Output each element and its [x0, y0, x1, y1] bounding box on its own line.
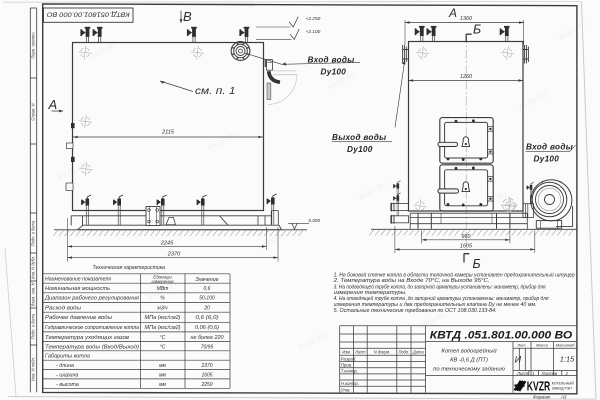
- svg-text:МПа (кгс/см2): МПа (кгс/см2): [145, 315, 181, 321]
- svg-text:А: А: [448, 6, 457, 20]
- svg-text:Рабочее давление воды: Рабочее давление воды: [45, 315, 112, 321]
- svg-text:КВТД .051.801.00.000 ВО: КВТД .051.801.00.000 ВО: [430, 330, 573, 342]
- svg-text:Пров.: Пров.: [341, 363, 352, 368]
- svg-text:2115: 2115: [161, 130, 175, 136]
- svg-text:Подп. и дата: Подп. и дата: [31, 313, 36, 339]
- svg-text:Вход воды: Вход воды: [526, 142, 573, 151]
- svg-text:2. Температура воды на Входе: 2. Температура воды на Входе 70°С, на Вы…: [332, 278, 489, 284]
- svg-text:2245: 2245: [160, 240, 174, 246]
- svg-text:- ширина: - ширина: [56, 372, 78, 378]
- svg-text:В: В: [183, 9, 192, 24]
- svg-text:N докум.: N докум.: [374, 350, 391, 355]
- svg-text:Инв. N дубл.: Инв. N дубл.: [31, 256, 36, 280]
- svg-text:2250: 2250: [200, 382, 212, 388]
- svg-text:Значение: Значение: [195, 277, 218, 283]
- svg-text:2370: 2370: [200, 363, 212, 369]
- svg-text:Справ. N: Справ. N: [31, 103, 36, 120]
- svg-text:мм: мм: [159, 372, 166, 378]
- svg-text:KVZR: KVZR: [527, 380, 551, 394]
- svg-text:мм: мм: [159, 363, 166, 369]
- svg-text:КВ -0,6 Д (ПТ): КВ -0,6 Д (ПТ): [450, 358, 488, 364]
- svg-text:Дата: Дата: [412, 350, 425, 355]
- svg-text:мм: мм: [159, 382, 166, 388]
- svg-text:20: 20: [203, 305, 210, 311]
- svg-text:4. На отводящей трубе котла ,: 4. На отводящей трубе котла ,до запорной…: [334, 295, 549, 302]
- svg-text:Подп.: Подп.: [398, 350, 409, 355]
- svg-text:1605: 1605: [201, 372, 212, 378]
- svg-text:Диапазон рабочего регулировани: Диапазон рабочего регулирования: [44, 296, 139, 302]
- svg-text:0,06 (0,6): 0,06 (0,6): [195, 325, 219, 331]
- svg-text:°С: °С: [160, 335, 166, 341]
- svg-text:Т.контр.: Т.контр.: [341, 369, 358, 374]
- svg-text:Инв. N подл.: Инв. N подл.: [31, 357, 36, 381]
- svg-text:А: А: [48, 97, 58, 112]
- svg-text:1:15: 1:15: [560, 355, 575, 364]
- svg-text:Н.контр.: Н.контр.: [341, 381, 359, 386]
- svg-text:см. п. 1: см. п. 1: [195, 86, 236, 97]
- svg-text:Утв.: Утв.: [341, 387, 351, 392]
- svg-text:не более 220: не более 220: [191, 335, 224, 341]
- svg-text:по техническому заданию: по техническому заданию: [433, 366, 505, 372]
- svg-text:+2.250: +2.250: [306, 16, 321, 22]
- svg-text:Dy100: Dy100: [321, 67, 347, 76]
- svg-text:Вход воды: Вход воды: [308, 55, 355, 64]
- svg-text:960: 960: [462, 234, 471, 240]
- svg-text:Dy100: Dy100: [347, 145, 373, 154]
- svg-text:м3/ч: м3/ч: [157, 305, 168, 311]
- svg-text:2370: 2370: [167, 252, 181, 258]
- svg-text:Взам. инв. N: Взам. инв. N: [31, 283, 36, 307]
- svg-text:Гидравлическое сопротивление к: Гидравлическое сопротивление котла: [45, 325, 139, 331]
- svg-text:Масштаб: Масштаб: [556, 343, 575, 348]
- svg-text:Температура уходящих газов: Температура уходящих газов: [45, 335, 129, 341]
- svg-text:1360: 1360: [460, 16, 472, 22]
- svg-text:Б: Б: [473, 22, 481, 36]
- svg-text:Выход воды: Выход воды: [332, 133, 386, 142]
- svg-text:Перв. примен.: Перв. примен.: [31, 31, 36, 58]
- svg-text:Габариты котла: Габариты котла: [45, 354, 90, 360]
- svg-text:1260: 1260: [460, 74, 472, 80]
- svg-text:Формат: Формат: [533, 394, 551, 399]
- svg-text:Разраб.: Разраб.: [341, 356, 357, 361]
- svg-text:Температура воды (Вход/Выход): Температура воды (Вход/Выход): [45, 344, 139, 350]
- svg-text:Листов: Листов: [541, 371, 558, 376]
- svg-text:А3: А3: [560, 394, 567, 399]
- svg-text:70/95: 70/95: [201, 344, 214, 350]
- svg-text:Техническая характеристика: Техническая характеристика: [93, 265, 166, 271]
- svg-text:Изм.: Изм.: [342, 350, 351, 355]
- svg-text:0,6 (6,0): 0,6 (6,0): [196, 315, 219, 321]
- svg-text:%: %: [160, 296, 165, 302]
- svg-text:измерения: измерения: [152, 279, 175, 284]
- svg-text:ЗАВОД РЭП: ЗАВОД РЭП: [552, 386, 573, 390]
- svg-text:- длина: - длина: [56, 363, 74, 369]
- svg-text:Расход воды: Расход воды: [45, 305, 81, 311]
- svg-text:МПа (кгс/см2): МПа (кгс/см2): [145, 325, 181, 331]
- svg-text:Б: Б: [473, 257, 481, 271]
- svg-text:Номинальная мощность: Номинальная мощность: [45, 286, 110, 292]
- svg-text:+2.100: +2.100: [306, 29, 321, 35]
- svg-text:- высота: - высота: [56, 382, 79, 388]
- svg-text:Масса: Масса: [536, 343, 549, 348]
- svg-text:0.000: 0.000: [309, 218, 321, 223]
- svg-text:°С: °С: [160, 344, 166, 350]
- svg-text:Лист: Лист: [354, 350, 366, 355]
- svg-text:Котел водогрейный: Котел водогрейный: [441, 348, 497, 355]
- svg-text:И: И: [515, 354, 522, 364]
- svg-text:Подп. и дата: Подп. и дата: [31, 220, 36, 246]
- svg-text:Лист: Лист: [516, 371, 528, 376]
- svg-text:5. Остальные технические треб: 5. Остальные технические требования по О…: [334, 308, 497, 314]
- svg-text:50-100: 50-100: [199, 296, 215, 302]
- svg-text:МВт: МВт: [157, 286, 169, 292]
- svg-text:1605: 1605: [460, 243, 473, 249]
- svg-text:Наименование показателя: Наименование показателя: [45, 277, 111, 283]
- svg-text:КОТЕЛЬНЫЙ: КОТЕЛЬНЫЙ: [552, 382, 574, 386]
- svg-text:КВТД.051801.00.000 ВО: КВТД.051801.00.000 ВО: [47, 11, 130, 18]
- svg-text:0,6: 0,6: [204, 286, 211, 292]
- svg-text:Dy100: Dy100: [534, 155, 560, 164]
- svg-text:Лит.: Лит.: [516, 343, 526, 348]
